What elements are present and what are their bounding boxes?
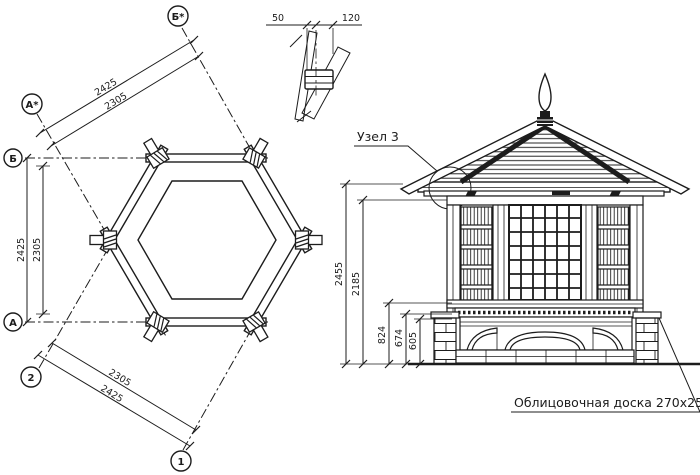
brick-pier-right [636, 318, 658, 364]
axis-label-a-star: А* [26, 100, 40, 111]
dim-label: 50 [272, 13, 284, 24]
brick-pier-left [434, 318, 456, 364]
axis-label-1: 1 [178, 457, 185, 468]
axis-label-2: 2 [28, 373, 35, 384]
lattice-panel-right [598, 207, 629, 300]
note-label: Облицовочная доска 270х25 [514, 395, 700, 410]
callout-label: Узел 3 [357, 129, 399, 144]
axis-label-a: А [9, 318, 17, 329]
bench [460, 317, 632, 350]
dim-label: 2305 [32, 238, 43, 262]
drawing-sheet: Б* А* Б А 2 1 2425 2305 2425 [0, 0, 700, 475]
eave-vent-slot [552, 191, 570, 195]
dim-label-605: 605 [408, 332, 419, 350]
eave-underboard [424, 191, 664, 196]
dim-label-824: 824 [377, 326, 388, 344]
wall-top-beam [447, 196, 643, 205]
axis-label-b: Б [9, 154, 17, 165]
technical-drawing: Б* А* Б А 2 1 2425 2305 2425 [0, 0, 700, 475]
lattice-panel-left [461, 207, 492, 300]
dim-label-total-height: 2455 [334, 262, 345, 286]
pier-cap-left [431, 312, 459, 318]
walls [447, 196, 643, 317]
dim-label-wall-height: 2185 [351, 272, 362, 296]
dim-label-674: 674 [394, 329, 405, 347]
axis-label-b-star: Б* [172, 12, 186, 23]
detail-spacer-block [305, 70, 333, 89]
roof-apex-block [537, 117, 553, 126]
pier-cap-right [633, 312, 661, 318]
dim-label: 2425 [16, 238, 27, 262]
dim-label: 120 [342, 13, 360, 24]
plinth [456, 350, 634, 363]
